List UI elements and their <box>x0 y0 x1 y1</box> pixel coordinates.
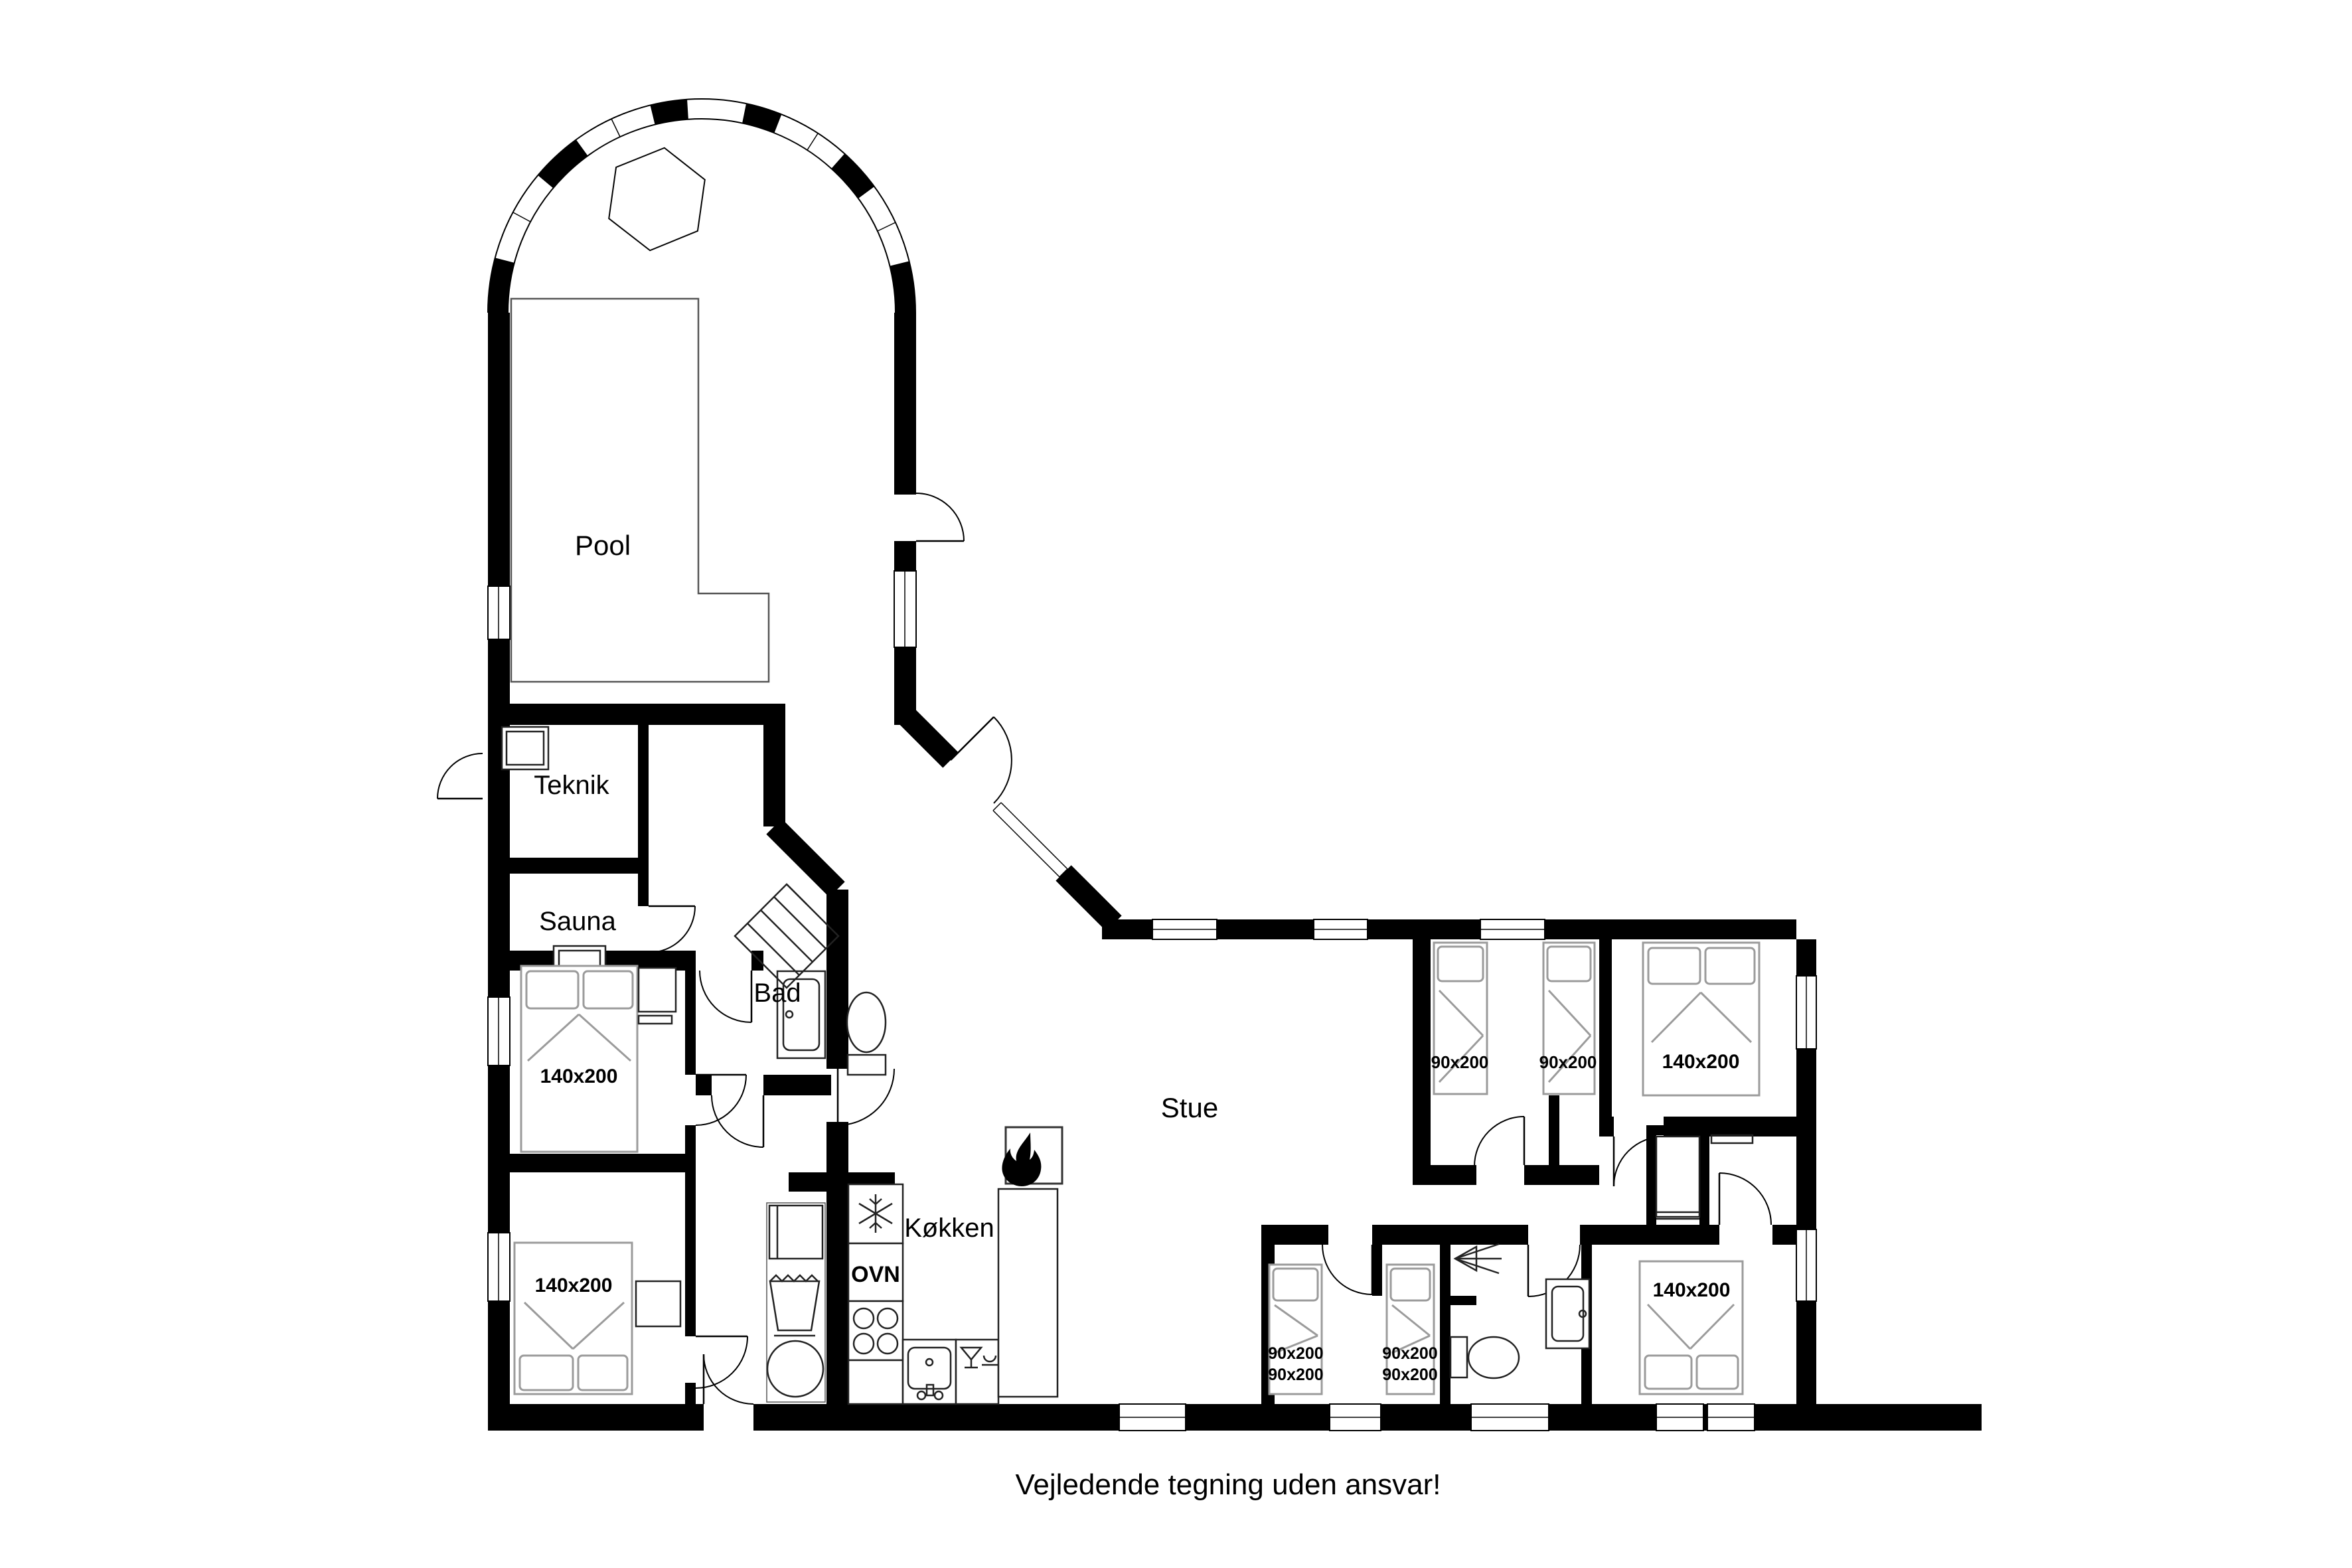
sink-icon <box>903 1340 956 1404</box>
door-bunk-room <box>1322 1245 1372 1294</box>
bed-left-2 <box>514 1243 632 1394</box>
hexagon-spa-icon <box>605 141 708 256</box>
bed-size-label: 90x200 <box>1268 1366 1323 1384</box>
room-label-stue: Stue <box>1161 1092 1218 1123</box>
pool-arch <box>488 99 915 313</box>
bath-shower-icon <box>1455 1244 1502 1273</box>
door-hall-kitchen <box>838 1069 894 1125</box>
nightstand-left-1 <box>639 968 676 1024</box>
room-label-sauna: Sauna <box>539 907 616 936</box>
disclaimer-note: Vejledende tegning uden ansvar! <box>1016 1468 1441 1501</box>
bath-toilet-icon <box>1450 1337 1519 1378</box>
door-sauna <box>649 906 695 953</box>
door-exterior-bottom <box>704 1354 753 1404</box>
door-teknik-exterior <box>437 753 483 799</box>
door-bad-north <box>700 971 751 1022</box>
bed-size-label: 90x200 <box>1268 1344 1323 1363</box>
laundry-basket-icon <box>770 1275 819 1336</box>
door-pool-east <box>916 493 964 541</box>
floorplan-page: Pool Teknik Sauna Bad Stue Køkken OVN 14… <box>0 0 2352 1568</box>
kitchen-island <box>998 1189 1058 1397</box>
bed-size-label: 90x200 <box>1382 1366 1437 1384</box>
walls <box>488 313 1982 1431</box>
entry-diagonal-window <box>993 803 1067 877</box>
kitchen-cabinet <box>848 1360 903 1404</box>
room-label-kokken: Køkken <box>904 1214 994 1243</box>
nightstand-left-2 <box>636 1281 680 1326</box>
room-label-pool: Pool <box>575 530 631 561</box>
bar-counter <box>956 1340 998 1404</box>
bed-left-1 <box>521 966 637 1152</box>
bed-size-label: 90x200 <box>1431 1052 1489 1072</box>
washing-machine-icon <box>767 1341 823 1397</box>
bed-size-label: 90x200 <box>1539 1052 1597 1072</box>
door-main-entry <box>951 717 1012 803</box>
bed-size-label: 140x200 <box>1653 1279 1731 1301</box>
floorplan-canvas: Pool Teknik Sauna Bad Stue Køkken OVN 14… <box>0 0 2352 1568</box>
arch-wall-piers <box>498 110 905 313</box>
utility <box>767 1203 825 1402</box>
door-room-right-top-1 <box>1474 1117 1524 1166</box>
room-label-teknik: Teknik <box>534 771 609 800</box>
bed-size-label: 140x200 <box>540 1065 618 1087</box>
bed-size-label: 140x200 <box>535 1275 613 1296</box>
fireplace <box>1002 1127 1062 1186</box>
bed-size-label: 140x200 <box>1662 1051 1740 1073</box>
door-bedroom-right-bottom <box>1719 1173 1771 1225</box>
cooktop <box>848 1301 903 1360</box>
bed-size-label: 90x200 <box>1382 1344 1437 1363</box>
pool-basin <box>511 299 769 682</box>
appliance-label-oven: OVN <box>851 1262 900 1287</box>
utility-cabinet <box>769 1206 823 1259</box>
bath-sink <box>1546 1279 1589 1348</box>
room-label-bad: Bad <box>753 979 801 1008</box>
teknik-unit <box>502 727 548 769</box>
bad-toilet-icon <box>847 992 886 1075</box>
